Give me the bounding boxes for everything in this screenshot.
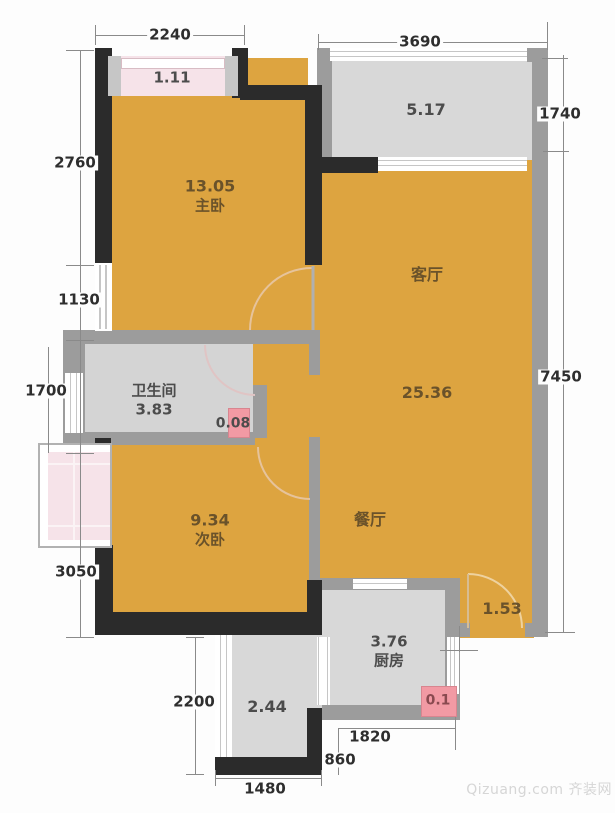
label-kitchen: 3.76 厨房 [370,632,407,670]
dimension-tick [66,50,94,51]
second-bedroom-area: 9.34 [190,511,229,530]
floor-plan: 2240 3690 2760 1130 1700 3050 2200 1740 … [0,0,615,813]
second-bedroom-name: 次卧 [190,531,229,550]
window-glass-line [226,635,227,757]
wall [532,55,548,637]
window-glass-line [220,635,221,757]
label-dining-room: 餐厅 [354,510,386,530]
dimension-label: 2200 [171,695,217,710]
bay-window-divider [48,525,110,527]
dimension-tick [66,453,94,454]
bay-window-top-sill [121,58,225,69]
wall [309,437,320,583]
dimension-tick [215,770,216,786]
bathroom-name: 卫生间 [131,381,176,399]
dimension-tick [542,58,568,59]
dimension-label: 3690 [397,35,443,50]
window-glass-line [327,637,328,705]
window-glass-line [330,51,527,52]
dimension-label: 2240 [147,28,193,43]
label-duct-kitchen: 0.1 [426,692,451,710]
dimension-tick [186,637,204,638]
label-balcony-top: 5.17 [406,100,445,120]
dimension-tick [66,265,94,266]
dimension-label: 860 [322,753,357,768]
window-glass-line [76,373,77,433]
dimension-tick [545,632,575,633]
dimension-tick [66,637,94,638]
dimension-tick [321,770,322,786]
label-living-room-area: 25.36 [402,383,453,403]
wall [525,623,548,637]
label-entry: 1.53 [482,599,521,619]
dimension-label: 1700 [23,384,69,399]
dimension-line [563,55,564,632]
master-door-opening [305,265,322,332]
bay-window-divider [48,463,110,465]
dimension-tick [543,151,569,152]
wall [305,97,322,265]
dimension-tick [459,626,460,652]
label-bay-window-top: 1.11 [153,69,190,88]
label-duct-bathroom: 0.08 [216,415,251,433]
window-glass-line [105,265,107,329]
label-master-bedroom: 13.05 主卧 [185,177,236,216]
window-glass-line [70,373,71,433]
master-bedroom-area: 13.05 [185,177,236,196]
kitchen-name: 厨房 [370,651,407,670]
wall [215,757,322,775]
label-living-room-name: 客厅 [411,265,443,285]
window-glass-line [318,637,319,705]
master-bedroom-name: 主卧 [185,197,236,216]
dimension-tick [186,774,204,775]
wall [307,580,322,615]
bay-window-divider [73,452,75,540]
dimension-label: 1820 [347,730,393,745]
dimension-label: 1740 [537,107,583,122]
label-second-bedroom: 9.34 次卧 [190,511,229,550]
window-glass-line [378,165,527,166]
kitchen-area: 3.76 [370,632,407,650]
watermark: Qizuang.com 齐装网 [452,779,612,799]
dimension-tick [244,25,245,45]
dimension-tick [455,717,456,750]
dimension-tick [66,340,94,341]
window-glass-line [378,160,527,161]
wall [445,578,460,627]
window-glass-line [353,583,407,584]
wall [309,330,320,375]
wall [95,612,322,635]
wall [253,385,267,438]
label-bathroom: 卫生间 3.83 [131,381,176,419]
window [215,635,232,757]
dimension-tick [318,34,319,50]
bathroom-area: 3.83 [131,400,176,419]
label-balcony-bottom: 2.44 [247,697,286,717]
dimension-label: 2760 [52,156,98,171]
kitchen-door-opening [353,579,407,589]
dimension-tick [95,25,96,45]
wall [322,157,378,173]
dimension-label: 1480 [242,782,288,797]
bay-window-rail [225,56,238,96]
dimension-line [48,347,49,453]
dimension-label: 7450 [538,370,584,385]
wall [63,330,309,344]
dimension-label: 1130 [56,293,102,308]
window-glass-line [330,56,527,57]
dimension-line [80,50,81,637]
dimension-tick [547,22,548,50]
bay-window-rail [108,56,121,96]
dimension-label: 3050 [53,565,99,580]
